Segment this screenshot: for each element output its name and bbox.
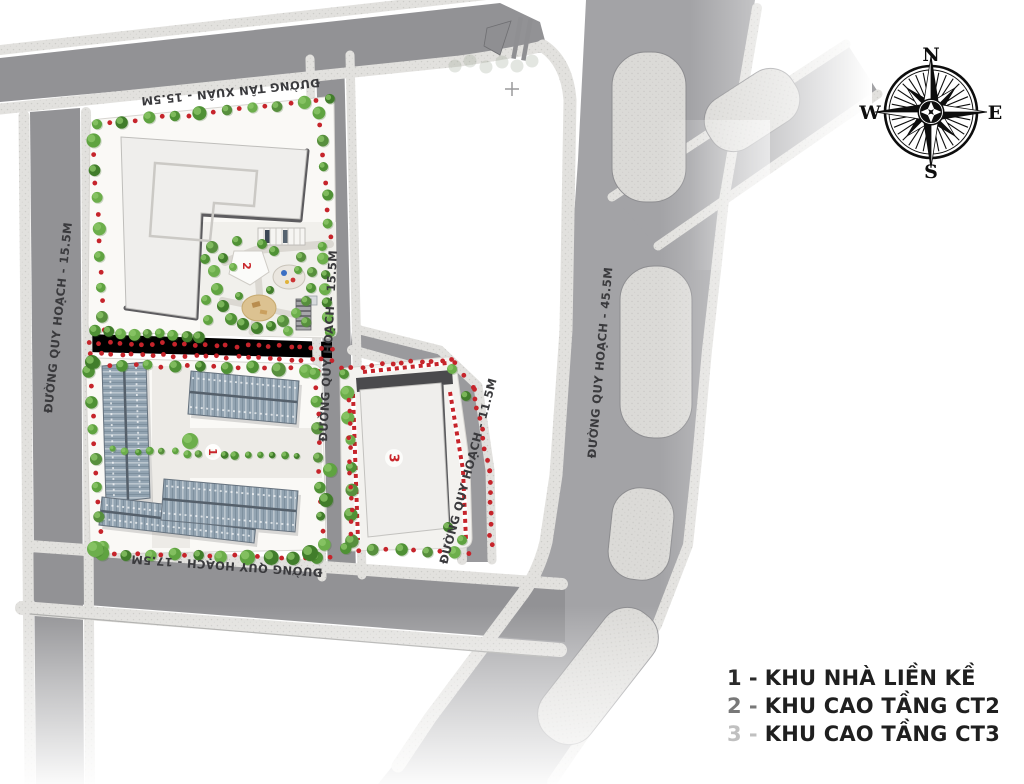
flower-dot [266,344,271,349]
flower-dot [224,356,229,361]
marker-zone-3: 3 [386,453,401,462]
flower-dot [87,340,92,345]
flower-dot [297,344,302,349]
flower-dot [107,363,112,368]
flower-dot [472,387,477,392]
flower-dot [391,362,396,367]
legend-num-1: 1 [727,664,742,692]
flower-dot [107,120,112,125]
park-layer [200,222,336,336]
flower-dot [171,354,176,359]
flower-dot [161,352,166,357]
flower-dot [489,522,494,527]
flower-dot [289,345,294,350]
flower-dot [237,354,242,359]
legend-sep-2: - [749,692,758,720]
flower-dot [490,542,495,547]
building-ct3 [360,383,449,537]
flower-dot [91,414,96,419]
flower-dot [349,496,354,501]
flower-dot [321,529,326,534]
legend-label-3: KHU CAO TẦNG CT3 [765,722,1000,746]
legend-item-2: 2-KHU CAO TẦNG CT2 [727,692,1000,720]
flower-dot [348,365,353,370]
flower-dot [350,508,355,513]
flower-dot [308,346,313,351]
flower-dot [325,208,330,213]
flower-dot [100,298,105,303]
flower-dot [262,366,267,371]
flower-dot [183,354,188,359]
faded-tree [526,55,539,68]
flower-dot [316,469,321,474]
flower-dot [349,519,354,524]
legend-sep-3: - [749,720,758,748]
flower-dot [99,351,104,356]
flower-dot [482,446,487,451]
flower-dot [256,355,261,360]
flower-dot [488,500,493,505]
flower-dot [313,385,318,390]
compass-rose: N S E W [858,44,1002,183]
flower-dot [383,547,388,552]
flower-dot [349,532,354,537]
flower-dot [488,480,493,485]
flower-dot [185,363,190,368]
flower-dot [473,397,478,402]
flower-dot [235,345,240,350]
flower-dot [129,342,134,347]
faded-tree [449,60,462,73]
flower-dot [487,469,492,474]
flower-dot [328,555,333,560]
flower-dot [289,101,294,106]
flower-dot [160,114,165,119]
flower-dot [369,363,374,368]
marker-zone-1: 1 [206,448,219,456]
flower-dot [139,342,144,347]
flower-dot [92,181,97,186]
east-fade [660,120,770,620]
flower-dot [96,212,101,217]
compass-e: E [988,102,1002,124]
flower-dot [211,364,216,369]
flower-dot [288,365,293,370]
flower-dot [488,490,493,495]
legend: 1-KHU NHÀ LIỀN KỀ 2-KHU CAO TẦNG CT2 3-K… [727,664,1000,748]
flower-dot [356,548,361,553]
flower-dot [129,352,134,357]
flower-dot [440,359,445,364]
survey-cross-mark [505,82,519,96]
flower-dot [203,342,208,347]
compass-w: W [858,102,881,124]
flower-dot [223,343,228,348]
flower-dot [277,343,282,348]
legend-label-1: KHU NHÀ LIỀN KỀ [765,666,976,690]
flower-dot [348,485,353,490]
flower-dot [108,352,113,357]
flower-dot [118,341,123,346]
flower-dot [262,104,267,109]
flower-dot [323,181,328,186]
faded-tree [464,55,477,68]
flower-dot [134,362,139,367]
flower-dot [204,354,209,359]
flower-dot [232,553,237,558]
flower-dot [487,533,492,538]
site-plan-page: ĐƯỜNG TÂN XUÂN - 15.5M ĐƯỜNG QUY HOẠCH -… [0,0,1024,784]
flower-dot [214,353,219,358]
flower-dot [328,235,333,240]
flower-dot [97,238,102,243]
flower-dot [211,110,216,115]
flower-dot [485,458,490,463]
flower-dot [158,365,163,370]
flower-dot [160,340,165,345]
flower-dot [268,356,273,361]
flower-dot [314,98,319,103]
compass-n: N [922,44,939,66]
legend-label-2: KHU CAO TẦNG CT2 [765,694,1000,718]
flower-dot [93,471,98,476]
flower-dot [255,554,260,559]
flower-dot [320,153,325,158]
flower-dot [347,398,352,403]
flower-dot [310,357,315,362]
flower-dot [380,361,385,366]
compass-s: S [924,161,938,183]
flower-dot [420,360,425,365]
sand-pit [242,295,276,321]
legend-sep-1: - [749,664,758,692]
flower-dot [112,552,117,557]
flower-dot [236,365,241,370]
flower-dot [257,343,262,348]
flower-dot [151,353,156,358]
flower-dot [91,441,96,446]
legend-item-3: 3-KHU CAO TẦNG CT3 [727,720,1000,748]
legend-num-3: 3 [727,720,742,748]
faded-tree [511,60,524,73]
flower-dot [98,529,103,534]
flower-dot [193,343,198,348]
flower-dot [279,556,284,561]
flower-dot [95,500,100,505]
legend-item-1: 1-KHU NHÀ LIỀN KỀ [727,664,1000,692]
flower-dot [150,342,155,347]
flower-dot [411,548,416,553]
flower-dot [89,384,94,389]
flower-dot [277,357,282,362]
flower-dot [187,114,192,119]
flower-dot [99,270,104,275]
flower-dot [96,341,101,346]
flower-dot [429,359,434,364]
flower-dot [194,353,199,358]
flower-dot [399,361,404,366]
flower-dot [182,342,187,347]
flower-dot [347,471,352,476]
faded-tree [480,61,493,74]
flower-dot [108,340,113,345]
marker-zone-2: 2 [240,262,253,270]
flower-dot [361,365,366,370]
flower-dot [246,342,251,347]
legend-num-2: 2 [727,692,742,720]
flower-dot [215,343,220,348]
flower-dot [348,409,353,414]
flower-dot [461,373,466,378]
flower-dot [489,511,494,516]
flower-dot [408,359,413,364]
flower-dot [172,342,177,347]
flower-dot [91,152,96,157]
flower-dot [466,551,471,556]
flower-dot [140,352,145,357]
flower-dot [289,358,294,363]
flower-dot [120,353,125,358]
flower-dot [133,118,138,123]
flower-dot [347,459,352,464]
flower-dot [317,123,322,128]
flower-dot [348,421,353,426]
faded-tree [496,56,509,69]
flower-dot [299,358,304,363]
flower-dot [246,355,251,360]
flower-dot [346,435,351,440]
flower-dot [348,445,353,450]
flower-dot [237,106,242,111]
